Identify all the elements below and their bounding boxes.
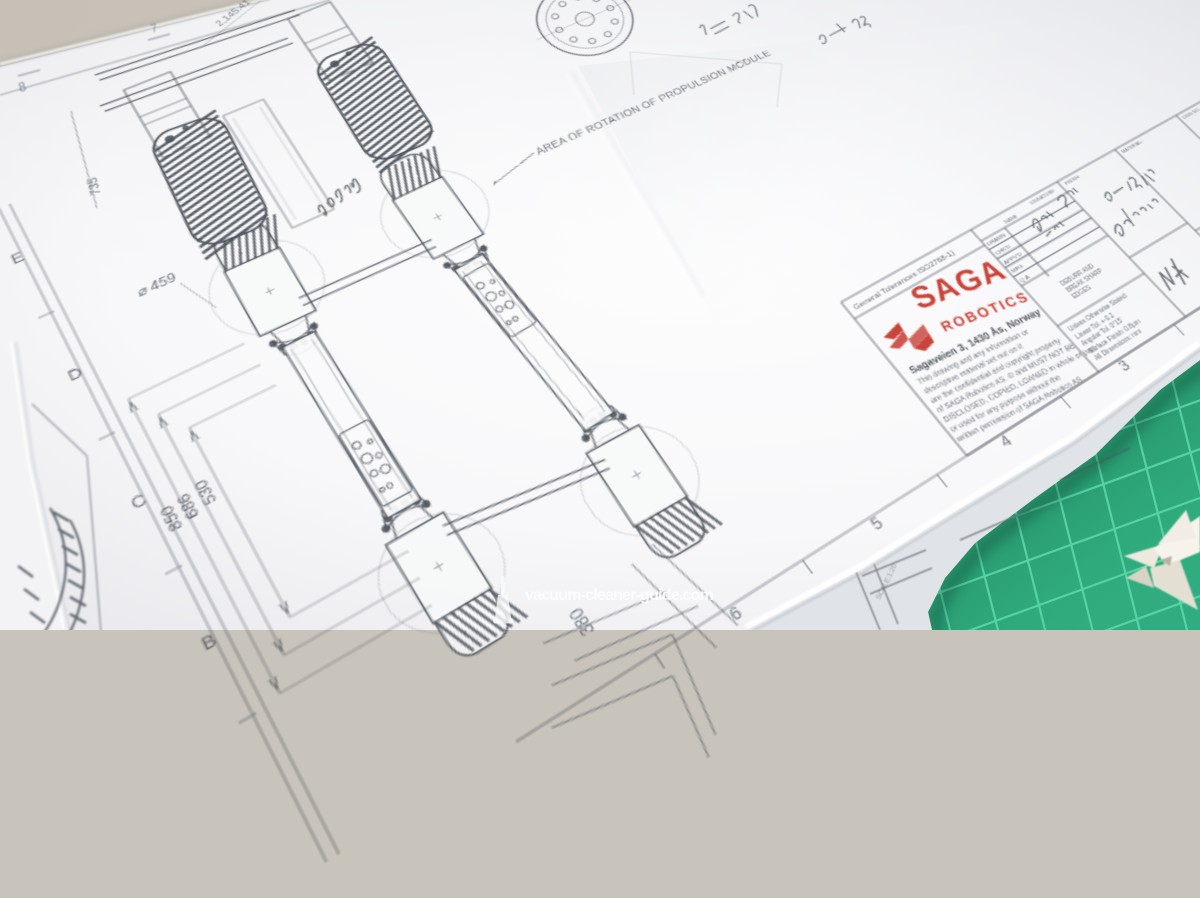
svg-text:MATERIAL:: MATERIAL: (1121, 139, 1145, 154)
svg-text:SIGNATURE: SIGNATURE (1029, 189, 1057, 207)
svg-text:735: 735 (83, 175, 104, 197)
svg-text:5: 5 (867, 514, 887, 535)
svg-text:380: 380 (567, 604, 599, 638)
svg-text:⌀ 459: ⌀ 459 (133, 270, 179, 300)
svg-text:B: B (198, 631, 220, 656)
svg-text:MFG: MFG (1011, 264, 1026, 275)
svg-text:Q.A: Q.A (1019, 275, 1032, 285)
svg-text:E: E (9, 250, 27, 268)
svg-text:DWG NO.: DWG NO. (1182, 107, 1200, 120)
svg-text:AREA OF ROTATION OF PROPULSION: AREA OF ROTATION OF PROPULSION MODULE (534, 48, 773, 157)
svg-text:2,145.41: 2,145.41 (213, 0, 253, 28)
